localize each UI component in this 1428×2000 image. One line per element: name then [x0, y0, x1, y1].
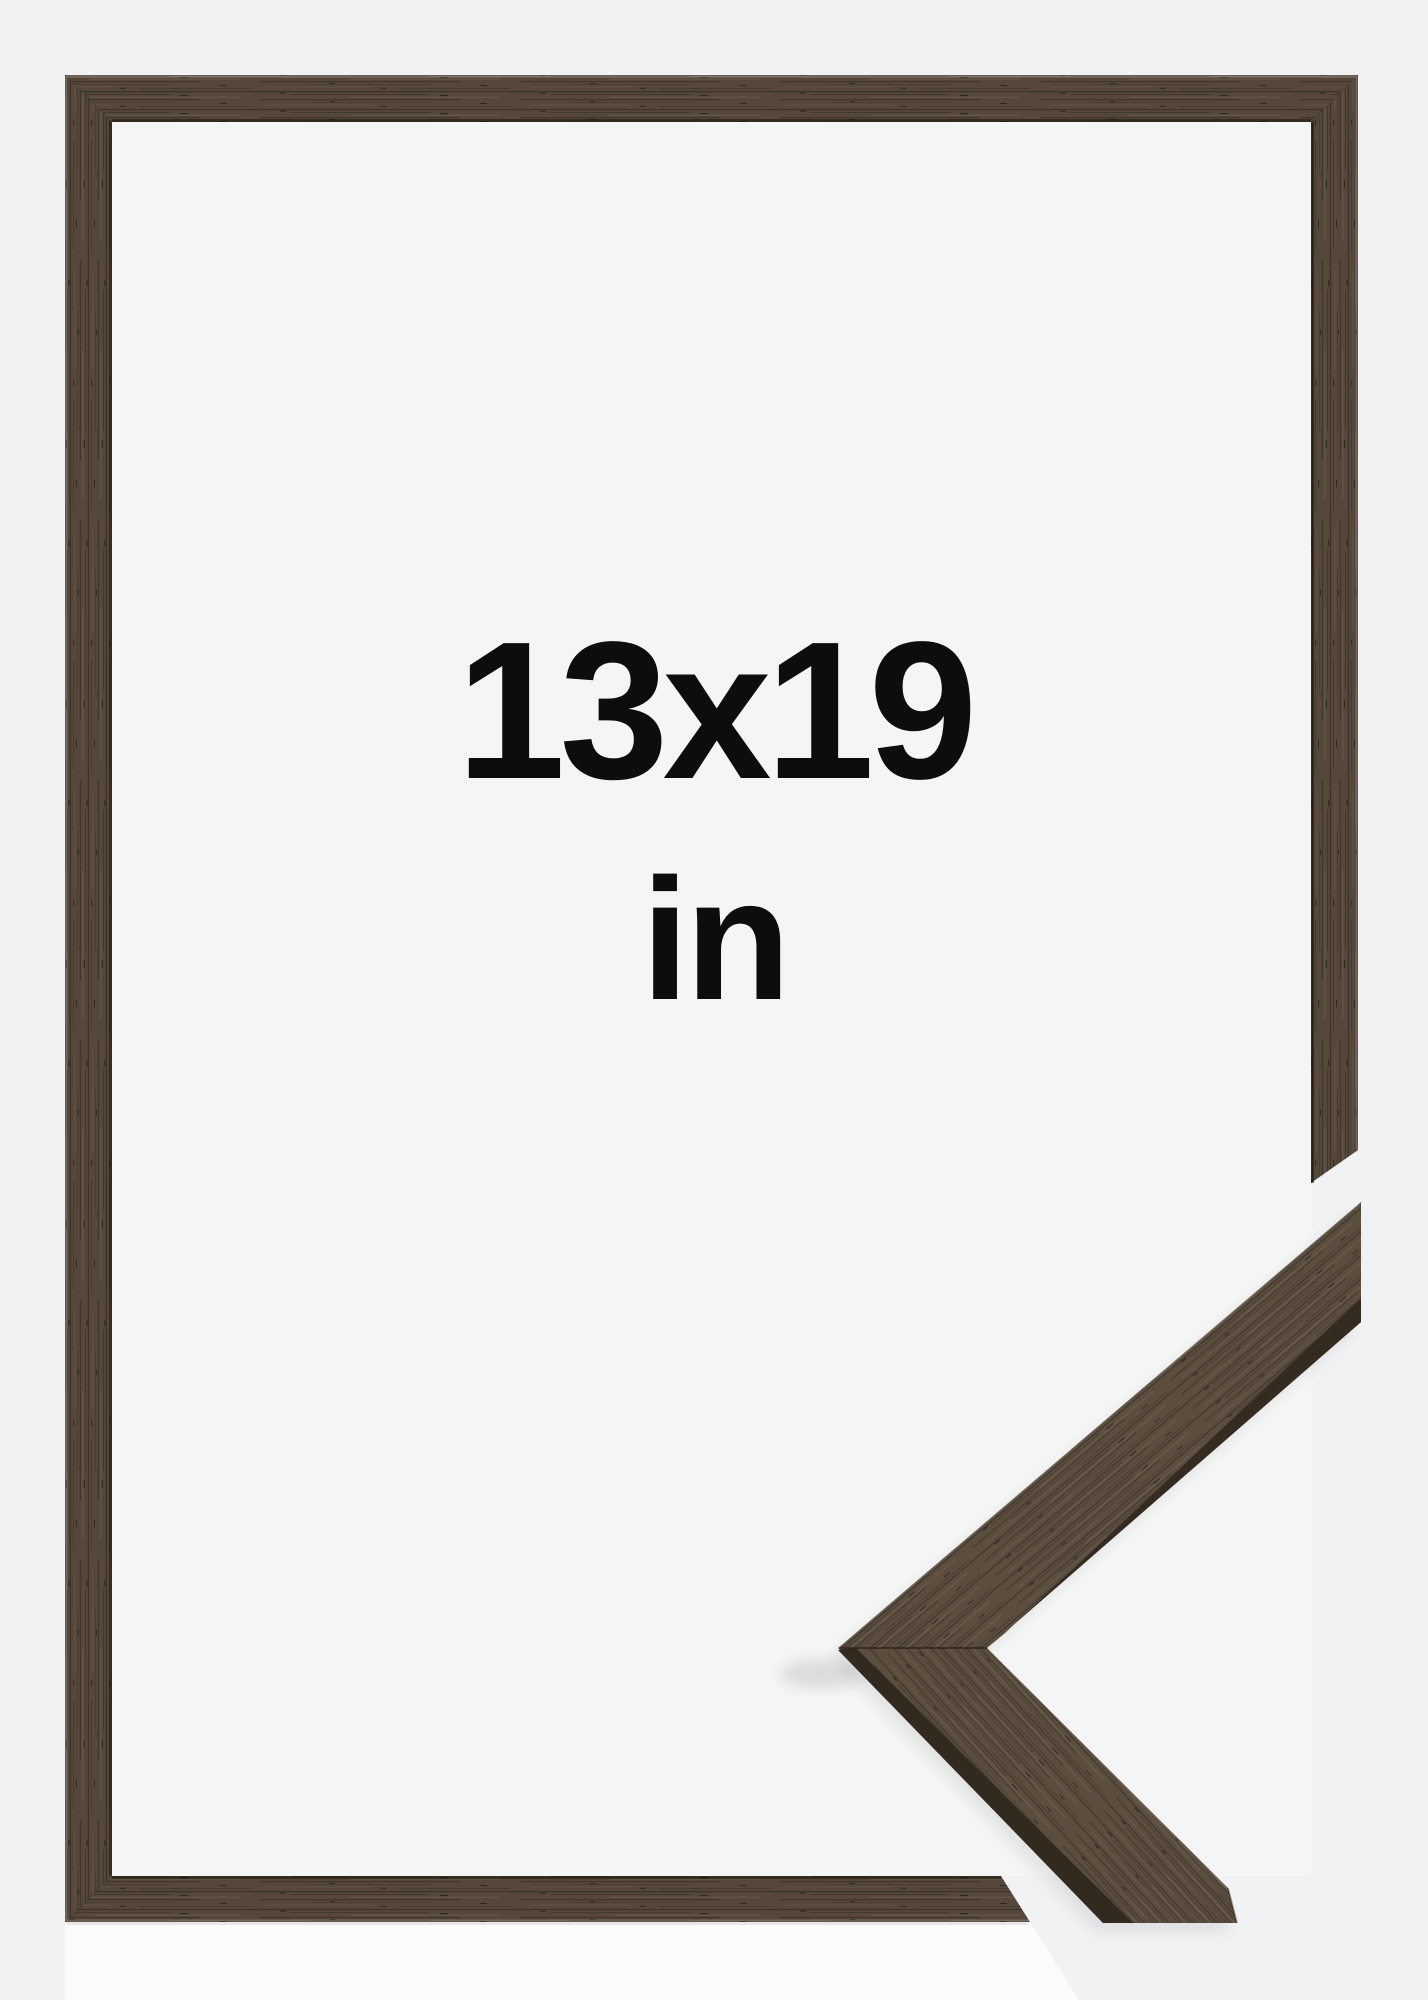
size-label: 13x19 [0, 613, 1428, 809]
frame-product-image: 13x19 in [0, 0, 1428, 2000]
frame-top-bar [65, 75, 1358, 122]
unit-label: in [0, 853, 1428, 1026]
frame-bottom-bar [65, 1876, 1030, 1922]
photo-bottom-strip [65, 1922, 1079, 2000]
corner-sample-tip-shadow [780, 1660, 864, 1688]
